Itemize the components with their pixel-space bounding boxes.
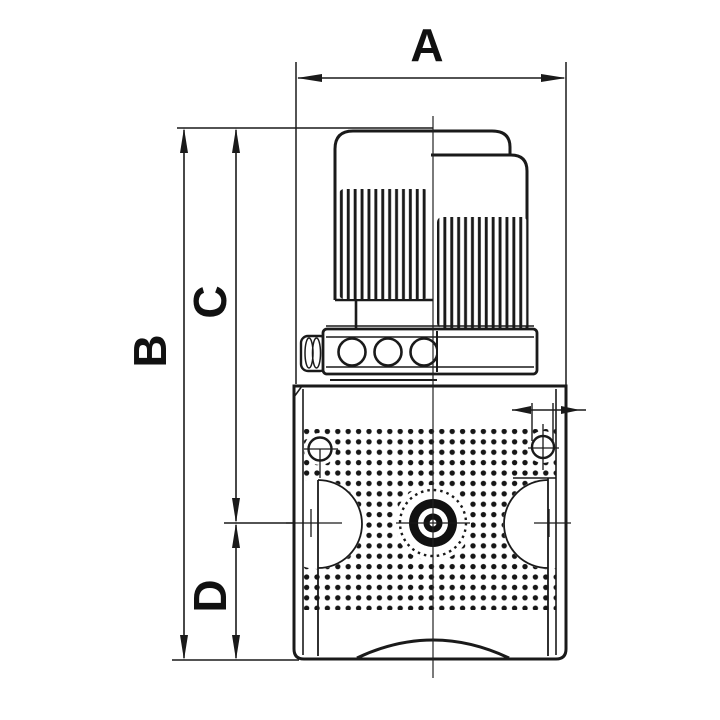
knurling-left [339, 189, 429, 299]
detent-ball [375, 339, 402, 366]
arrowhead-d-bottom [232, 635, 240, 660]
dimension-a: A [297, 19, 566, 82]
detent-ball [339, 339, 366, 366]
detent-balls [339, 339, 438, 366]
dim-label-a: A [410, 19, 443, 71]
arrowhead-b-top [180, 128, 188, 153]
drawing-sheet: A B C D [0, 0, 720, 720]
arrowhead-b-bottom [180, 635, 188, 660]
arrowhead-a-right [541, 74, 566, 82]
knurling-right [437, 217, 527, 328]
lock-collar [301, 326, 537, 380]
dimension-b: B [124, 128, 188, 660]
dimension-c: C [184, 128, 240, 523]
arrowhead-c-top [232, 128, 240, 153]
arrowhead-c-bottom [232, 498, 240, 523]
arrowhead-a-left [297, 74, 322, 82]
adjustment-knob [335, 131, 527, 329]
arrowhead-d-top [232, 523, 240, 548]
dim-label-b: B [124, 334, 176, 367]
technical-drawing: A B C D [0, 0, 720, 720]
dim-label-d: D [184, 579, 236, 612]
small-dim-arrow-right [561, 406, 580, 414]
dim-label-c: C [184, 285, 236, 318]
dimension-d: D [184, 523, 240, 660]
